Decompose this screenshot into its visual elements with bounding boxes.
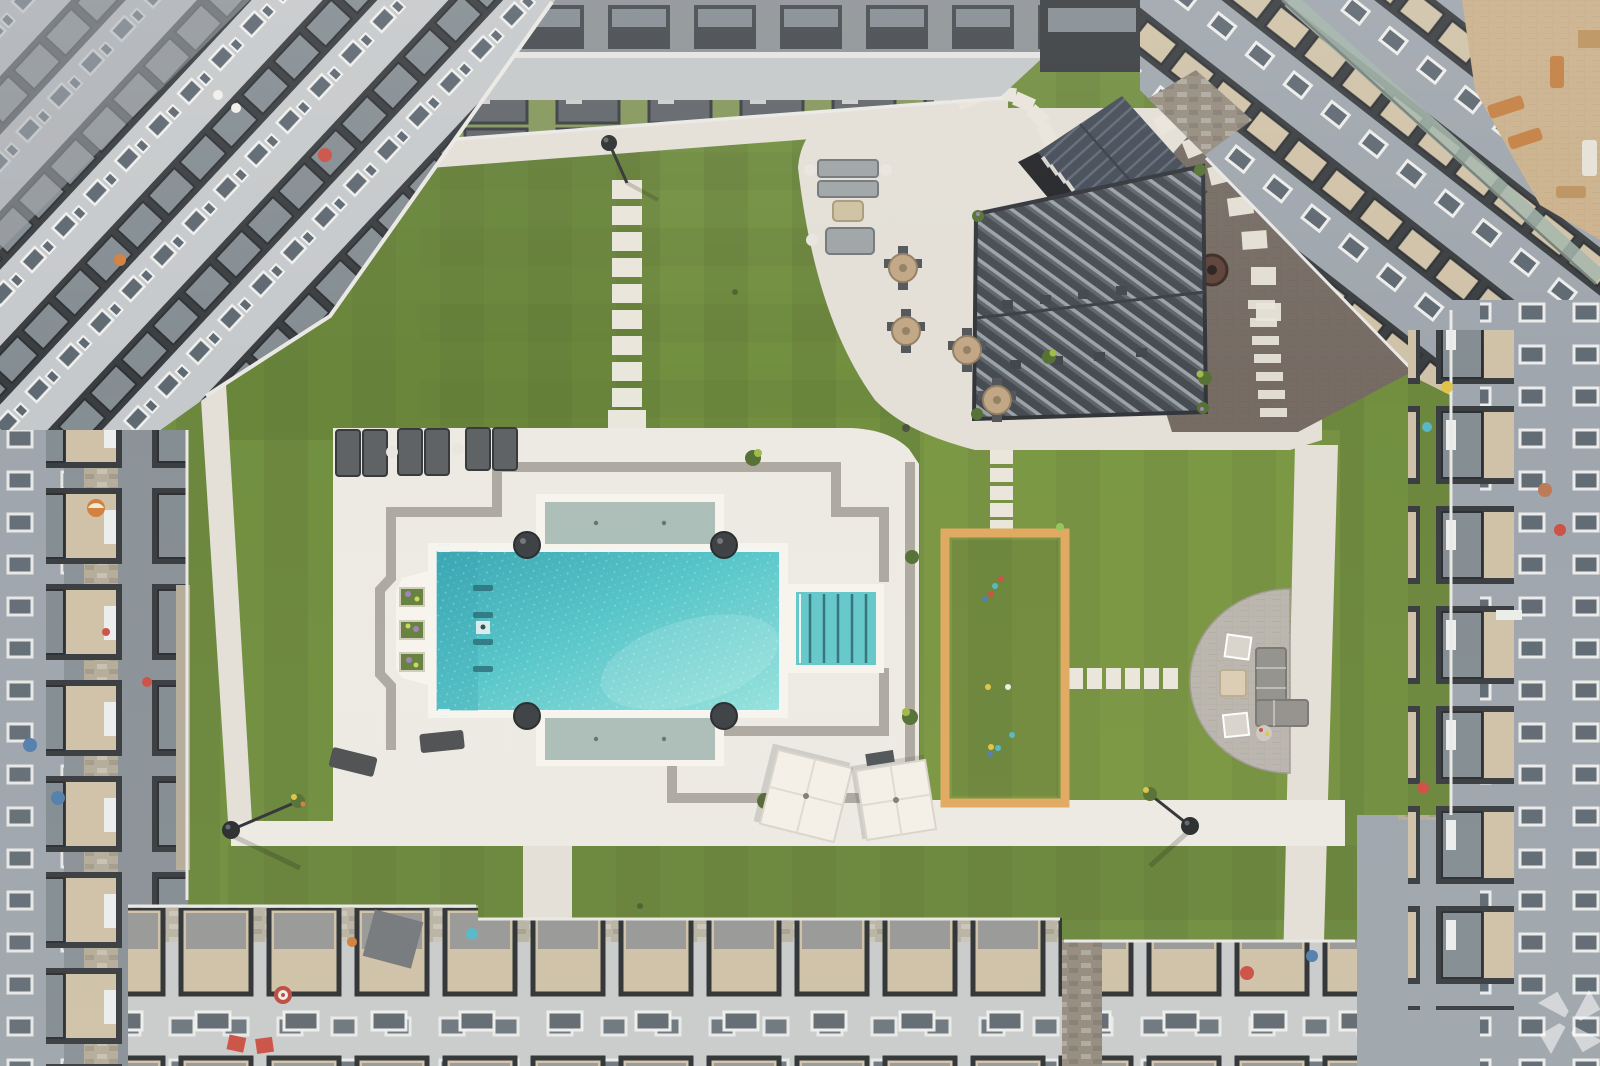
warm-tint [0,0,1600,1066]
screenshot-canvas [0,0,1600,1066]
aerial-scene [0,0,1600,1066]
